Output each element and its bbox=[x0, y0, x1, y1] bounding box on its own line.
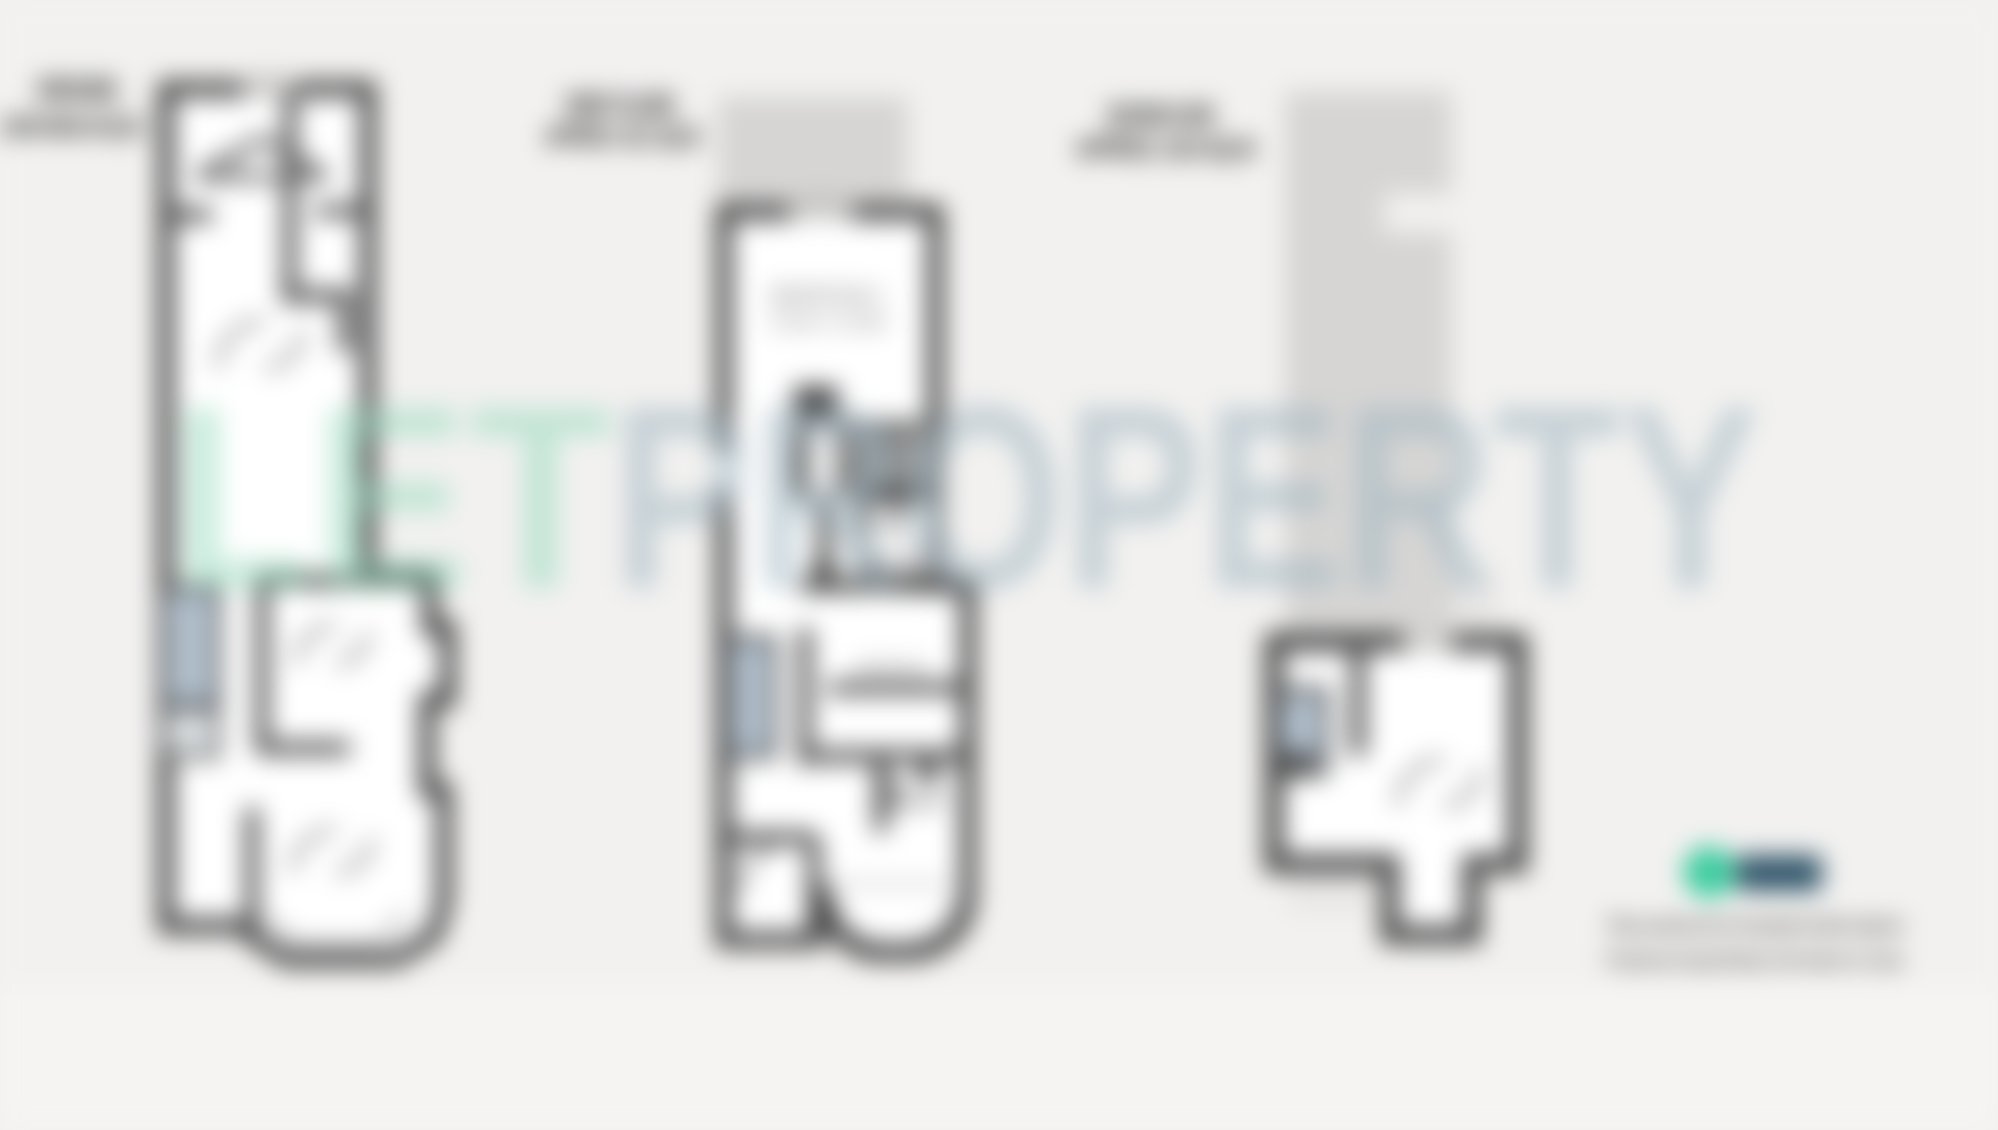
svg-text:APPROX. 45.1 SQ M: APPROX. 45.1 SQ M bbox=[545, 121, 699, 152]
svg-text:4.11m x 3.15m: 4.11m x 3.15m bbox=[769, 312, 887, 332]
svg-text:GROUND: GROUND bbox=[37, 72, 117, 107]
svg-text:LET: LET bbox=[170, 351, 612, 644]
svg-text:SECOND FLOOR: SECOND FLOOR bbox=[1108, 98, 1214, 133]
svg-text:BEDROOM 2: BEDROOM 2 bbox=[857, 661, 929, 678]
svg-text:BEDROOM 1: BEDROOM 1 bbox=[771, 286, 885, 307]
svg-text:FIRST FLOOR: FIRST FLOOR bbox=[566, 88, 674, 123]
svg-text:Produced using PlanUp. Not dra: Produced using PlanUp. Not drawn to scal… bbox=[1606, 950, 1906, 972]
svg-text:PROPERTY: PROPERTY bbox=[612, 351, 1760, 644]
svg-text:APPROX. 20.9 SQ M: APPROX. 20.9 SQ M bbox=[1076, 133, 1254, 164]
svg-text:Plan produced for Example Esta: Plan produced for Example Estate Agents bbox=[1608, 915, 1904, 937]
svg-text:FLOOR AREA 64 SQ M: FLOOR AREA 64 SQ M bbox=[0, 111, 141, 142]
